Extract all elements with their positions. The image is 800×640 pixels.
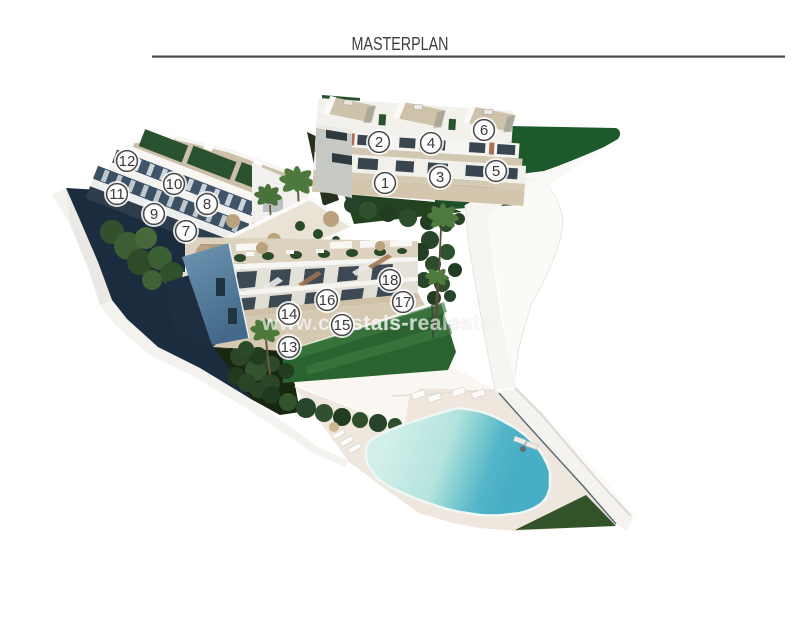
svg-text:17: 17 <box>395 294 412 311</box>
svg-text:18: 18 <box>382 272 399 289</box>
svg-text:13: 13 <box>281 339 298 356</box>
svg-text:6: 6 <box>480 122 488 139</box>
svg-text:3: 3 <box>436 169 444 186</box>
svg-text:9: 9 <box>150 206 158 223</box>
svg-text:15: 15 <box>334 317 351 334</box>
svg-text:4: 4 <box>427 135 435 152</box>
svg-text:7: 7 <box>182 223 190 240</box>
svg-text:5: 5 <box>492 163 500 180</box>
svg-text:8: 8 <box>203 196 211 213</box>
svg-text:11: 11 <box>109 186 125 203</box>
svg-text:MASTERPLAN: MASTERPLAN <box>352 33 449 54</box>
svg-text:12: 12 <box>119 153 136 170</box>
svg-text:14: 14 <box>281 306 298 323</box>
svg-text:1: 1 <box>381 175 389 192</box>
svg-text:16: 16 <box>319 292 336 309</box>
svg-text:10: 10 <box>166 176 183 193</box>
svg-text:2: 2 <box>375 134 383 151</box>
